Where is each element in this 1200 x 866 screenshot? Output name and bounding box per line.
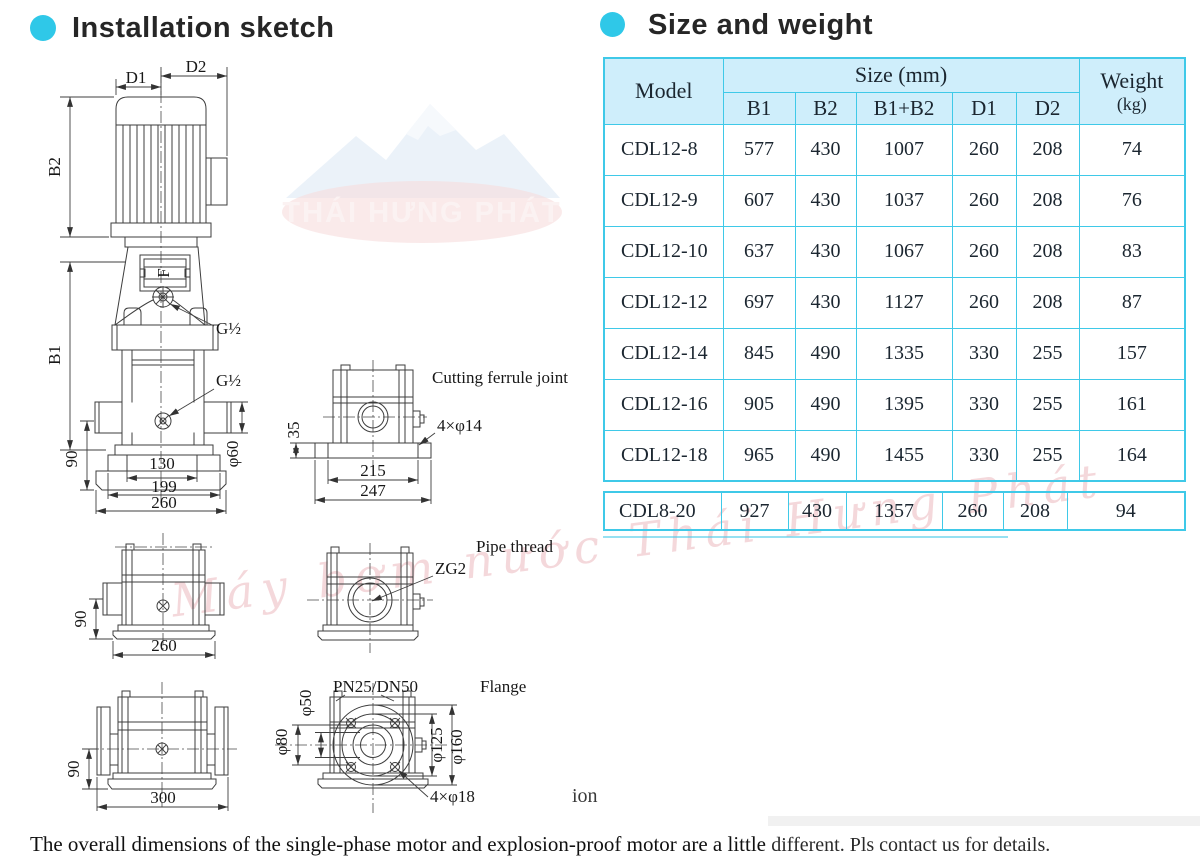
port-label-g12-mid: G½ [216,371,241,390]
ferrule-annotations: Cutting ferrule joint 4×φ14 35 215 247 [284,368,568,504]
cell-d1: 260 [952,226,1016,277]
dim-label-247: 247 [360,481,386,500]
footnote-part2: different. Pls contact us for details. [771,834,1050,856]
cell-d2: 208 [1016,175,1079,226]
installation-title: Installation sketch [72,12,335,45]
cell-b2: 490 [795,379,856,430]
weight-line2: (kg) [1080,94,1185,115]
dim-label-260: 260 [151,493,177,512]
cell-b2: 430 [795,277,856,328]
cell-weight: 157 [1079,328,1185,379]
cell-model: CDL12-8 [604,124,723,175]
ferrule-joint-drawing: Cutting ferrule joint 4×φ14 35 215 247 [285,358,585,508]
cell-model: CDL12-18 [604,430,723,481]
col-header-d2: D2 [1016,92,1079,124]
cell-b1b2: 1007 [856,124,952,175]
dim-label-phi160: φ160 [447,729,466,764]
thread-side-body [103,533,224,653]
table-cut-artifact [603,536,1008,538]
col-header-b1: B1 [723,92,795,124]
dim-label-phi80: φ80 [272,729,291,756]
cell-b1: 637 [723,226,795,277]
cell-weight: 164 [1079,430,1185,481]
dim-label-260: 260 [151,636,177,655]
size-weight-table-lastrow: CDL8-20927430135726020894 [603,491,1186,531]
dim-label-90: 90 [64,761,83,778]
cell-model: CDL12-9 [604,175,723,226]
dim-label-300: 300 [150,788,176,807]
size-weight-bullet-icon [600,12,625,37]
cell-model: CDL8-20 [604,492,721,530]
col-header-b1b2: B1+B2 [856,92,952,124]
cell-d2: 255 [1016,328,1079,379]
cell-b1b2: 1357 [846,492,942,530]
table-row: CDL12-12697430112726020887 [604,277,1185,328]
cell-b1: 965 [723,430,795,481]
cell-b1: 607 [723,175,795,226]
cell-b1b2: 1455 [856,430,952,481]
size-weight-title: Size and weight [648,9,873,42]
dim-label-130: 130 [149,454,175,473]
footnote-part1: The overall dimensions of the single-pha… [30,832,771,856]
cell-b2: 490 [795,328,856,379]
dim-label-b2: B2 [45,157,64,177]
dim-label-d2: D2 [186,57,207,76]
port-label-zg2: ZG2 [435,559,466,578]
cell-b2: 430 [795,226,856,277]
table-row: CDL12-148454901335330255157 [604,328,1185,379]
weight-line1: Weight [1080,68,1185,94]
cell-b1b2: 1335 [856,328,952,379]
dim-label-35: 35 [284,422,303,439]
col-header-size-group: Size (mm) [723,58,1079,92]
dim-label-90: 90 [71,611,90,628]
coupling-section: F [112,247,218,350]
ferrule-title: Cutting ferrule joint [432,368,568,387]
cell-d1: 330 [952,430,1016,481]
ferrule-holes-label: 4×φ14 [437,416,482,435]
col-header-model: Model [604,58,723,124]
ferrule-body [315,360,431,470]
cell-b1: 697 [723,277,795,328]
window-glyph: F [154,268,173,277]
cell-model: CDL12-16 [604,379,723,430]
flange-side-annotations: 90 300 [64,749,228,811]
pipe-thread-body [307,543,433,653]
motor-body [111,97,227,247]
cell-d1: 260 [952,124,1016,175]
cell-d1: 260 [942,492,1003,530]
cell-d1: 260 [952,175,1016,226]
col-header-weight: Weight(kg) [1079,58,1185,124]
col-header-b2: B2 [795,92,856,124]
cell-weight: 94 [1067,492,1185,530]
pipe-thread-annotations: ZG2 Pipe thread [372,537,553,601]
cell-b1: 845 [723,328,795,379]
cell-model: CDL12-10 [604,226,723,277]
cell-b1b2: 1037 [856,175,952,226]
cell-b1: 905 [723,379,795,430]
pipe-thread-title: Pipe thread [476,537,553,556]
dim-label-90: 90 [62,451,81,468]
cell-b2: 430 [788,492,846,530]
cell-weight: 87 [1079,277,1185,328]
cell-weight: 74 [1079,124,1185,175]
cell-d2: 255 [1016,379,1079,430]
cell-b2: 430 [795,175,856,226]
cell-b1b2: 1127 [856,277,952,328]
cell-b1: 927 [721,492,788,530]
cell-model: CDL12-12 [604,277,723,328]
table-row: CDL12-9607430103726020876 [604,175,1185,226]
cell-b1b2: 1067 [856,226,952,277]
cell-d2: 208 [1016,226,1079,277]
flange-front-drawing: PN25/DN50 Flange φ50 φ80 φ125 φ160 4×φ18 [275,675,540,820]
cell-d2: 208 [1016,277,1079,328]
table-row: CDL12-10637430106726020883 [604,226,1185,277]
flange-front-annotations: PN25/DN50 Flange φ50 φ80 φ125 φ160 4×φ18 [272,677,526,806]
cell-weight: 76 [1079,175,1185,226]
flange-rating-label: PN25/DN50 [333,677,418,696]
cell-b2: 490 [795,430,856,481]
pipe-thread-drawing: ZG2 Pipe thread [305,538,575,670]
cell-d1: 260 [952,277,1016,328]
cell-d2: 255 [1016,430,1079,481]
cell-d2: 208 [1016,124,1079,175]
table-row: CDL12-169054901395330255161 [604,379,1185,430]
dim-label-b1: B1 [45,345,64,365]
flange-holes-label: 4×φ18 [430,787,475,806]
scan-artifact [768,816,1200,826]
cropped-text-fragment: ion [572,785,598,808]
col-header-d1: D1 [952,92,1016,124]
flange-title: Flange [480,677,526,696]
thread-side-drawing: 90 260 [70,525,300,665]
cell-b1b2: 1395 [856,379,952,430]
dim-label-215: 215 [360,461,386,480]
dim-label-phi125: φ125 [427,727,446,762]
cell-weight: 83 [1079,226,1185,277]
dim-label-phi50: φ50 [296,690,315,717]
table-row: CDL12-189654901455330255164 [604,430,1185,481]
table-row: CDL12-8577430100726020874 [604,124,1185,175]
cell-model: CDL12-14 [604,328,723,379]
cell-weight: 161 [1079,379,1185,430]
cell-b2: 430 [795,124,856,175]
dim-label-d1: D1 [126,68,147,87]
cell-d1: 330 [952,328,1016,379]
cell-b1: 577 [723,124,795,175]
cell-d1: 330 [952,379,1016,430]
port-label-g12-top: G½ [216,319,241,338]
table-row: CDL8-20927430135726020894 [604,492,1185,530]
size-weight-table: Model Size (mm) Weight(kg) B1 B2 B1+B2 D… [603,57,1186,482]
catalog-page: THÁI HƯNG PHÁT Máy bơm nước Thái Hưng Ph… [0,0,1200,866]
dim-label-phi60: φ60 [223,441,242,468]
footnote: The overall dimensions of the single-pha… [30,832,1170,857]
cell-d2: 208 [1003,492,1067,530]
installation-bullet-icon [30,15,56,41]
